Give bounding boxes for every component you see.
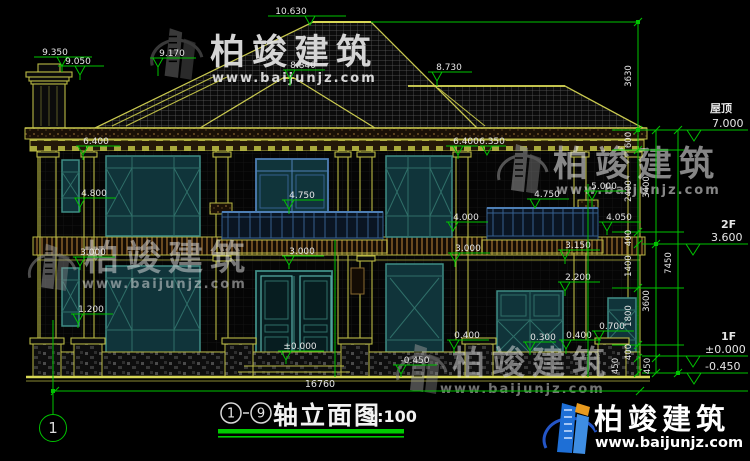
cad-elevation-drawing: 柏竣建筑 www.baijunjz.com 柏竣建筑 www.baijunjz.… [0,0,750,461]
watermark-url-text: www.baijunjz.com [82,277,247,292]
svg-text:0.400: 0.400 [454,331,480,341]
window-1f-stair [386,264,443,352]
svg-text:±0.000: ±0.000 [283,342,317,352]
watermark-url-text: www.baijunjz.com [212,71,377,86]
logo-url-text: www.baijunjz.com [595,435,743,451]
drawing-scale: 1:100 [366,407,417,426]
svg-text:3630: 3630 [624,65,634,87]
svg-text:4.050: 4.050 [606,213,632,223]
window-2f-right-large [386,156,452,237]
vent [351,268,364,294]
svg-text:1.200: 1.200 [78,305,104,315]
svg-text:6.350: 6.350 [479,137,505,147]
svg-text:4.000: 4.000 [453,213,479,223]
svg-text:8.840: 8.840 [290,61,316,71]
svg-text:4.750: 4.750 [289,191,315,201]
svg-text:400: 400 [624,344,634,360]
axis-from-number: 1 [227,407,235,422]
axis-to-number: 9 [257,407,265,422]
watermark-brand-text: 柏竣建筑 [84,238,252,279]
svg-text:4.750: 4.750 [534,190,560,200]
chimney [26,64,72,128]
svg-text:6.400: 6.400 [83,137,109,147]
drawing-canvas: 柏竣建筑 www.baijunjz.com 柏竣建筑 www.baijunjz.… [0,0,750,461]
axis-number: 1 [48,419,58,437]
logo-brand-text: 柏竣建筑 [594,402,730,436]
svg-text:±0.000: ±0.000 [705,343,746,356]
svg-text:9.050: 9.050 [65,57,91,67]
svg-text:-0.450: -0.450 [705,360,740,373]
svg-text:2F: 2F [721,218,736,231]
svg-text:5.000: 5.000 [591,182,617,192]
svg-text:8.730: 8.730 [436,63,462,73]
window-2f-left-narrow [62,160,79,212]
watermark-url-text: www.baijunjz.com [440,382,605,397]
svg-text:3.600: 3.600 [711,231,743,244]
svg-text:2.200: 2.200 [565,273,591,283]
svg-text:6.400: 6.400 [453,137,479,147]
title-underline [218,429,404,434]
svg-text:7450: 7450 [664,252,674,274]
window-2f-left-large [106,156,200,236]
svg-text:3600: 3600 [642,290,652,312]
svg-text:-0.450: -0.450 [400,356,429,366]
svg-text:4.800: 4.800 [81,189,107,199]
svg-text:1800: 1800 [624,305,634,327]
svg-text:3.150: 3.150 [565,241,591,251]
svg-text:3.000: 3.000 [80,248,106,258]
drawing-title: 轴立面图 [273,401,381,430]
svg-text:9.170: 9.170 [159,49,185,59]
svg-text:1F: 1F [721,330,736,343]
svg-text:0.300: 0.300 [530,333,556,343]
svg-text:7.000: 7.000 [712,117,744,130]
svg-text:2400: 2400 [624,180,634,202]
svg-text:0.700: 0.700 [599,322,625,332]
svg-text:屋顶: 屋顶 [710,102,732,115]
svg-text:10.630: 10.630 [275,7,307,17]
svg-text:3400: 3400 [642,176,652,198]
svg-text:1400: 1400 [624,255,634,277]
svg-text:450: 450 [643,358,653,374]
svg-text:3.000: 3.000 [289,247,315,257]
svg-text:600: 600 [624,132,634,148]
title-underline-thin [218,436,404,438]
svg-text:400: 400 [624,230,634,246]
svg-text:3.000: 3.000 [455,244,481,254]
svg-text:16760: 16760 [305,379,335,390]
brand-logo: 柏竣建筑 www.baijunjz.com [544,402,743,454]
svg-text:450: 450 [611,358,621,374]
